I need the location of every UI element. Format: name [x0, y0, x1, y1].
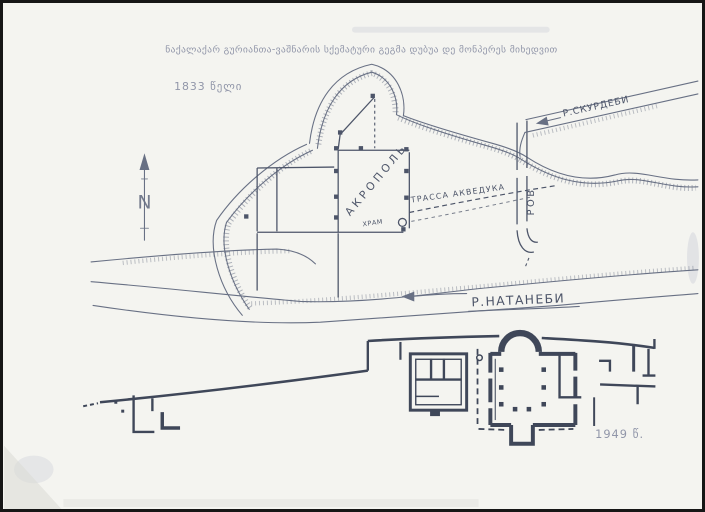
page-title: ნაქალაქარ გურიანთა-ვაშნარის სქემატური გე… — [165, 44, 558, 55]
porch — [509, 425, 535, 444]
temple-label: ХРАМ — [362, 218, 383, 229]
acropolis-label: АКРОПОЛЬ — [342, 141, 410, 218]
river-skurdebi-banner: Р.СКУРДЕБИ — [520, 81, 698, 156]
map-drawing: ნაქალაქარ გურიანთა-ვაშნარის სქემატური გე… — [3, 3, 702, 509]
plan-1949 — [83, 333, 655, 444]
year-1949-label: 1949 წ. — [595, 427, 644, 441]
temple-marker: ХРАМ — [362, 218, 406, 229]
temple-circle-icon — [398, 218, 406, 226]
east-annex — [599, 339, 655, 404]
fortress-walls — [257, 98, 409, 298]
year-1833-label: 1833 წელი — [174, 80, 242, 93]
river-natanebi-label: Р.НАТАНЕБИ — [471, 291, 565, 309]
square-building — [410, 354, 466, 416]
aqueduct-label: ТРАССА АКВЕДУКА — [409, 182, 505, 204]
compass-letter: N — [137, 193, 151, 214]
natanebi-arrowhead-icon — [401, 292, 414, 302]
basilica-plan — [477, 333, 594, 444]
river-and-road-lines — [91, 249, 698, 323]
apse-arc — [501, 333, 539, 352]
church-pillars — [499, 367, 546, 411]
skurdebi-arrowhead-icon — [536, 117, 549, 126]
moat-channel: РОВ — [517, 121, 538, 268]
map-1833: N — [91, 64, 698, 323]
moat-label: РОВ — [526, 188, 537, 216]
north-arrow-icon: N — [137, 153, 151, 240]
long-wall — [83, 336, 654, 406]
scanned-archaeological-map-page: ნაქალაქარ გურიანთა-ვაშნარის სქემატური გე… — [0, 0, 705, 512]
river-skurdebi-label: Р.СКУРДЕБИ — [562, 94, 631, 119]
